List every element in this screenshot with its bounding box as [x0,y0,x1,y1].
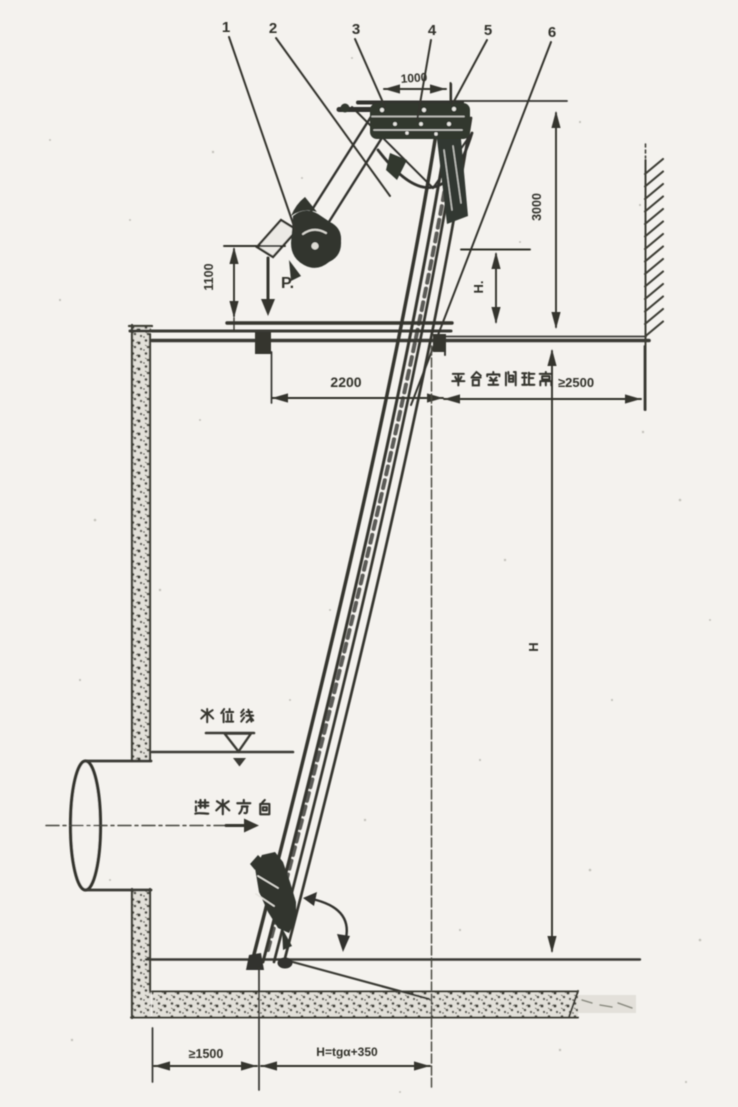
svg-text:2200: 2200 [330,374,361,390]
svg-text:1000: 1000 [400,70,428,86]
svg-text:1100: 1100 [202,263,216,290]
svg-text:H.: H. [471,281,486,294]
svg-text:4: 4 [428,22,437,39]
svg-text:1: 1 [222,19,230,36]
svg-text:3000: 3000 [530,193,544,221]
svg-text:H=tgα+350: H=tgα+350 [316,1045,378,1059]
svg-text:≥1500: ≥1500 [189,1047,224,1061]
svg-text:5: 5 [484,22,492,39]
svg-text:≥2500: ≥2500 [558,375,594,390]
svg-text:H: H [526,642,541,651]
svg-text:3: 3 [352,21,360,38]
svg-text:6: 6 [548,24,556,41]
svg-text:P.: P. [281,275,294,292]
svg-text:2: 2 [269,20,277,37]
